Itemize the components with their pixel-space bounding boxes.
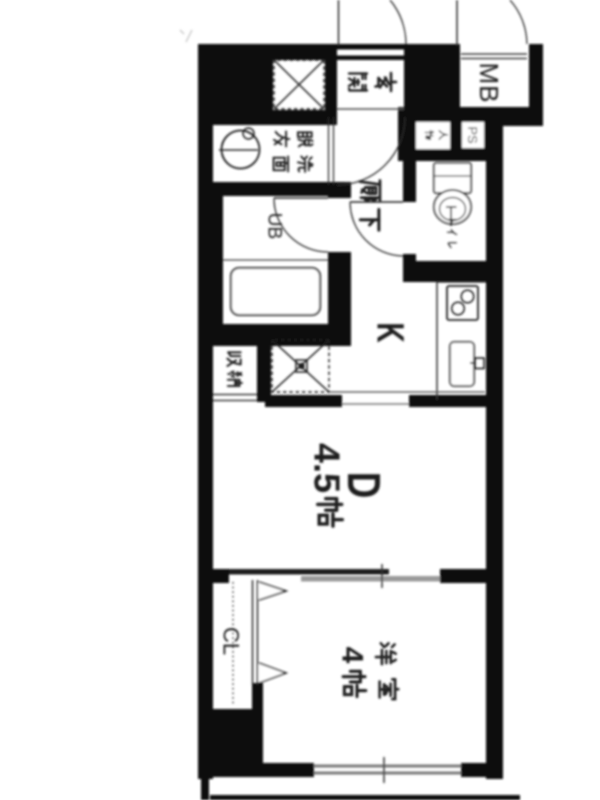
svg-text:MB: MB bbox=[474, 63, 504, 104]
svg-text:PS: PS bbox=[465, 126, 480, 144]
svg-text:4: 4 bbox=[336, 647, 369, 664]
svg-text:4.5: 4.5 bbox=[307, 443, 348, 493]
svg-text:K: K bbox=[368, 322, 410, 342]
svg-text:CL: CL bbox=[219, 627, 244, 655]
svg-text:UB: UB bbox=[264, 213, 285, 239]
